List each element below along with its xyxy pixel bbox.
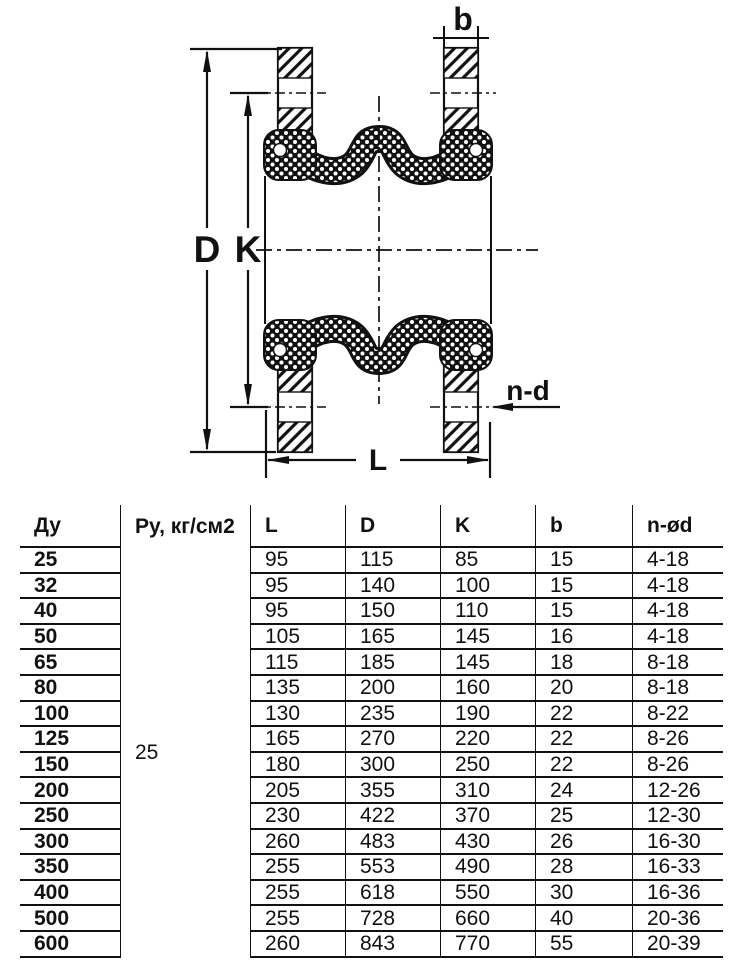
- nd-cell: 4-18: [632, 625, 723, 651]
- bolt-hole: [470, 344, 483, 357]
- l-cell: 255: [250, 855, 345, 881]
- k-cell: 145: [440, 650, 535, 676]
- l-cell: 105: [250, 625, 345, 651]
- l-cell: 180: [250, 753, 345, 779]
- d-cell: 728: [345, 906, 440, 932]
- header-d: D: [345, 505, 440, 548]
- nd-cell: 8-26: [632, 753, 723, 779]
- dim-label-K: K: [235, 229, 262, 270]
- b-cell: 18: [535, 650, 632, 676]
- l-cell: 95: [250, 548, 345, 574]
- du-cell: 125: [20, 727, 120, 753]
- l-cell: 205: [250, 778, 345, 804]
- b-cell: 15: [535, 599, 632, 625]
- k-cell: 660: [440, 906, 535, 932]
- nd-cell: 16-30: [632, 830, 723, 856]
- dimensions-table: Ду Ру, кг/см2 L D K b n-ød 25 2595115851…: [20, 505, 723, 958]
- b-cell: 20: [535, 676, 632, 702]
- d-cell: 235: [345, 702, 440, 728]
- b-cell: 22: [535, 727, 632, 753]
- dim-label-n-d: n-d: [506, 375, 550, 406]
- d-cell: 355: [345, 778, 440, 804]
- nd-cell: 12-30: [632, 804, 723, 830]
- bolt-hole: [274, 344, 287, 357]
- d-cell: 422: [345, 804, 440, 830]
- dim-label-L: L: [369, 444, 387, 477]
- b-cell: 30: [535, 881, 632, 907]
- d-cell: 200: [345, 676, 440, 702]
- l-cell: 115: [250, 650, 345, 676]
- k-cell: 100: [440, 574, 535, 600]
- d-cell: 270: [345, 727, 440, 753]
- b-cell: 22: [535, 753, 632, 779]
- expansion-joint-drawing: D K b L: [0, 0, 743, 500]
- header-pu: Ру, кг/см2: [120, 505, 250, 548]
- du-cell: 32: [20, 574, 120, 600]
- d-cell: 843: [345, 932, 440, 958]
- l-cell: 135: [250, 676, 345, 702]
- header-b: b: [535, 505, 632, 548]
- b-cell: 40: [535, 906, 632, 932]
- k-cell: 250: [440, 753, 535, 779]
- d-cell: 115: [345, 548, 440, 574]
- l-cell: 95: [250, 574, 345, 600]
- k-cell: 220: [440, 727, 535, 753]
- l-cell: 165: [250, 727, 345, 753]
- bolt-hole: [470, 144, 483, 157]
- b-cell: 55: [535, 932, 632, 958]
- du-cell: 65: [20, 650, 120, 676]
- b-cell: 22: [535, 702, 632, 728]
- k-cell: 550: [440, 881, 535, 907]
- l-cell: 260: [250, 830, 345, 856]
- nd-cell: 8-22: [632, 702, 723, 728]
- b-cell: 26: [535, 830, 632, 856]
- d-cell: 300: [345, 753, 440, 779]
- b-cell: 24: [535, 778, 632, 804]
- nd-cell: 16-33: [632, 855, 723, 881]
- d-cell: 185: [345, 650, 440, 676]
- du-cell: 150: [20, 753, 120, 779]
- d-cell: 140: [345, 574, 440, 600]
- header-du: Ду: [20, 505, 120, 548]
- k-cell: 770: [440, 932, 535, 958]
- b-cell: 16: [535, 625, 632, 651]
- k-cell: 85: [440, 548, 535, 574]
- du-cell: 350: [20, 855, 120, 881]
- k-cell: 430: [440, 830, 535, 856]
- d-cell: 483: [345, 830, 440, 856]
- nd-cell: 12-26: [632, 778, 723, 804]
- d-cell: 553: [345, 855, 440, 881]
- dim-label-D: D: [194, 229, 221, 270]
- du-cell: 200: [20, 778, 120, 804]
- l-cell: 95: [250, 599, 345, 625]
- du-cell: 500: [20, 906, 120, 932]
- du-cell: 40: [20, 599, 120, 625]
- d-cell: 150: [345, 599, 440, 625]
- k-cell: 310: [440, 778, 535, 804]
- du-cell: 300: [20, 830, 120, 856]
- b-cell: 28: [535, 855, 632, 881]
- nd-cell: 4-18: [632, 599, 723, 625]
- header-nd: n-ød: [632, 505, 723, 548]
- l-cell: 130: [250, 702, 345, 728]
- du-cell: 100: [20, 702, 120, 728]
- l-cell: 230: [250, 804, 345, 830]
- k-cell: 145: [440, 625, 535, 651]
- k-cell: 190: [440, 702, 535, 728]
- page: D K b L: [0, 0, 743, 970]
- nd-cell: 4-18: [632, 574, 723, 600]
- d-cell: 165: [345, 625, 440, 651]
- d-cell: 618: [345, 881, 440, 907]
- l-cell: 260: [250, 932, 345, 958]
- dim-label-b: b: [453, 1, 473, 37]
- du-cell: 25: [20, 548, 120, 574]
- nd-cell: 8-18: [632, 676, 723, 702]
- nd-cell: 8-26: [632, 727, 723, 753]
- l-cell: 255: [250, 881, 345, 907]
- b-cell: 25: [535, 804, 632, 830]
- b-cell: 15: [535, 574, 632, 600]
- k-cell: 110: [440, 599, 535, 625]
- nd-cell: 8-18: [632, 650, 723, 676]
- du-cell: 400: [20, 881, 120, 907]
- du-cell: 250: [20, 804, 120, 830]
- nd-cell: 16-36: [632, 881, 723, 907]
- k-cell: 160: [440, 676, 535, 702]
- l-cell: 255: [250, 906, 345, 932]
- nd-cell: 20-39: [632, 932, 723, 958]
- du-cell: 600: [20, 932, 120, 958]
- nd-cell: 20-36: [632, 906, 723, 932]
- bolt-hole: [274, 144, 287, 157]
- header-k: K: [440, 505, 535, 548]
- b-cell: 15: [535, 548, 632, 574]
- du-cell: 80: [20, 676, 120, 702]
- du-cell: 50: [20, 625, 120, 651]
- k-cell: 370: [440, 804, 535, 830]
- nd-cell: 4-18: [632, 548, 723, 574]
- header-l: L: [250, 505, 345, 548]
- pressure-cell: 25: [120, 548, 250, 958]
- k-cell: 490: [440, 855, 535, 881]
